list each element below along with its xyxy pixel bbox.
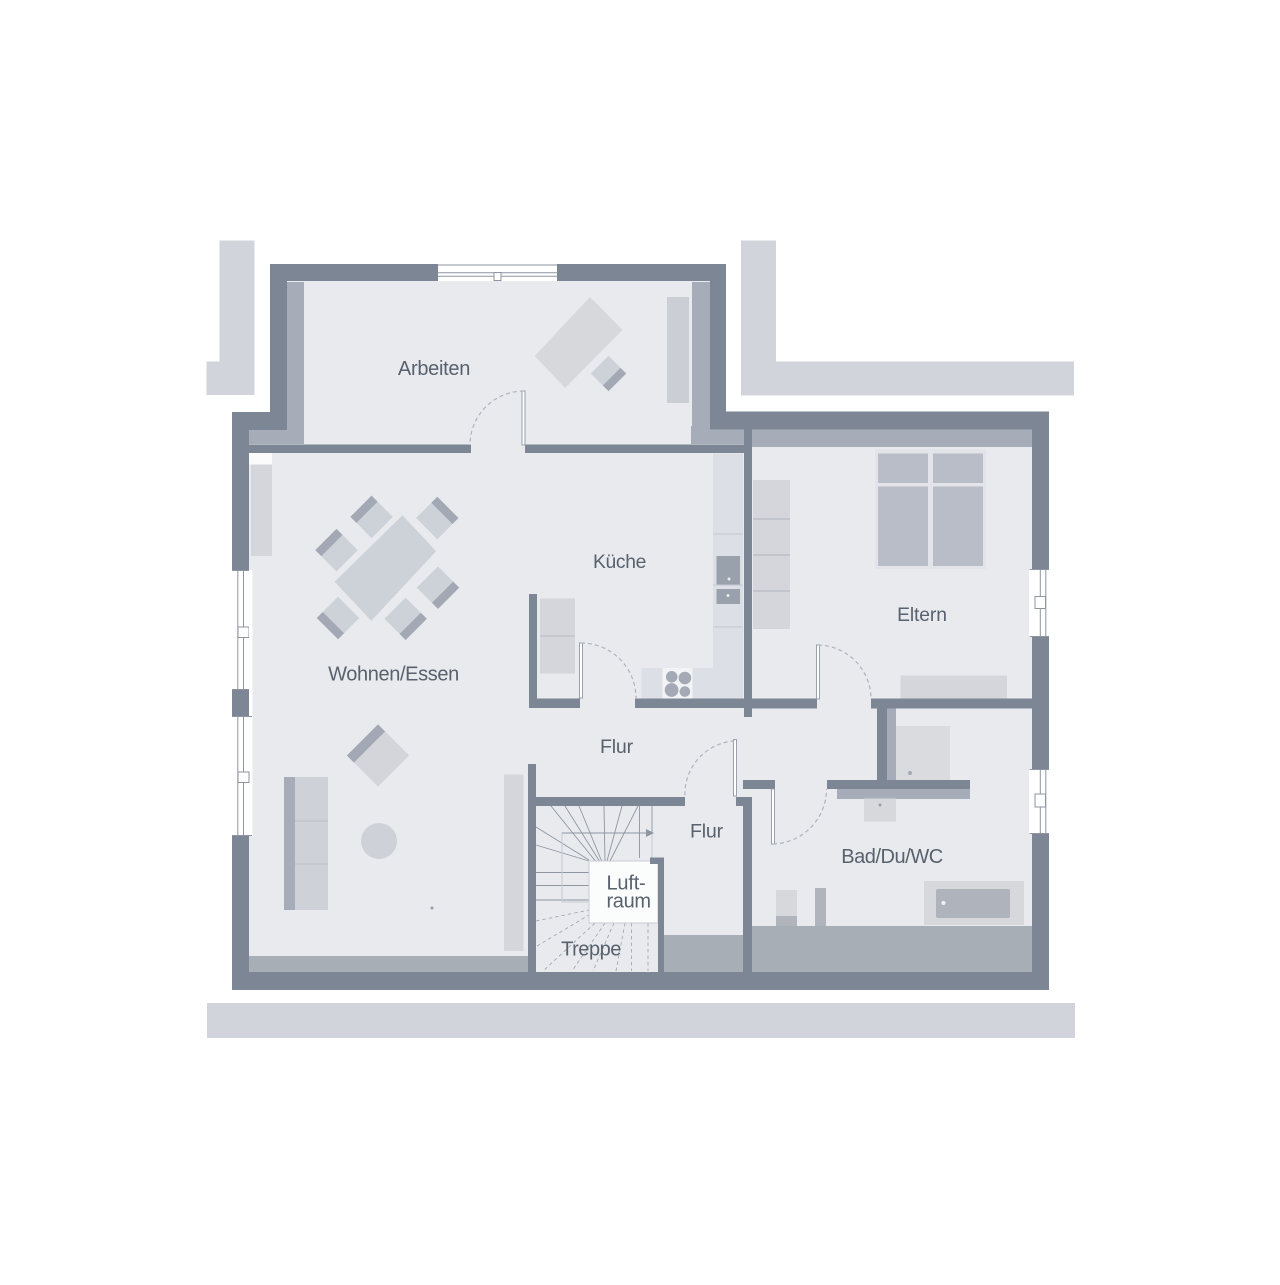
svg-text:Wohnen/Essen: Wohnen/Essen bbox=[328, 664, 459, 686]
svg-text:raum: raum bbox=[607, 891, 651, 913]
svg-text:Küche: Küche bbox=[593, 552, 646, 573]
svg-text:Bad/Du/WC: Bad/Du/WC bbox=[841, 846, 943, 868]
svg-text:Treppe: Treppe bbox=[561, 939, 621, 961]
svg-text:Eltern: Eltern bbox=[897, 605, 947, 626]
svg-text:Flur: Flur bbox=[690, 821, 724, 843]
svg-text:Arbeiten: Arbeiten bbox=[398, 358, 470, 380]
svg-text:Flur: Flur bbox=[600, 736, 634, 758]
